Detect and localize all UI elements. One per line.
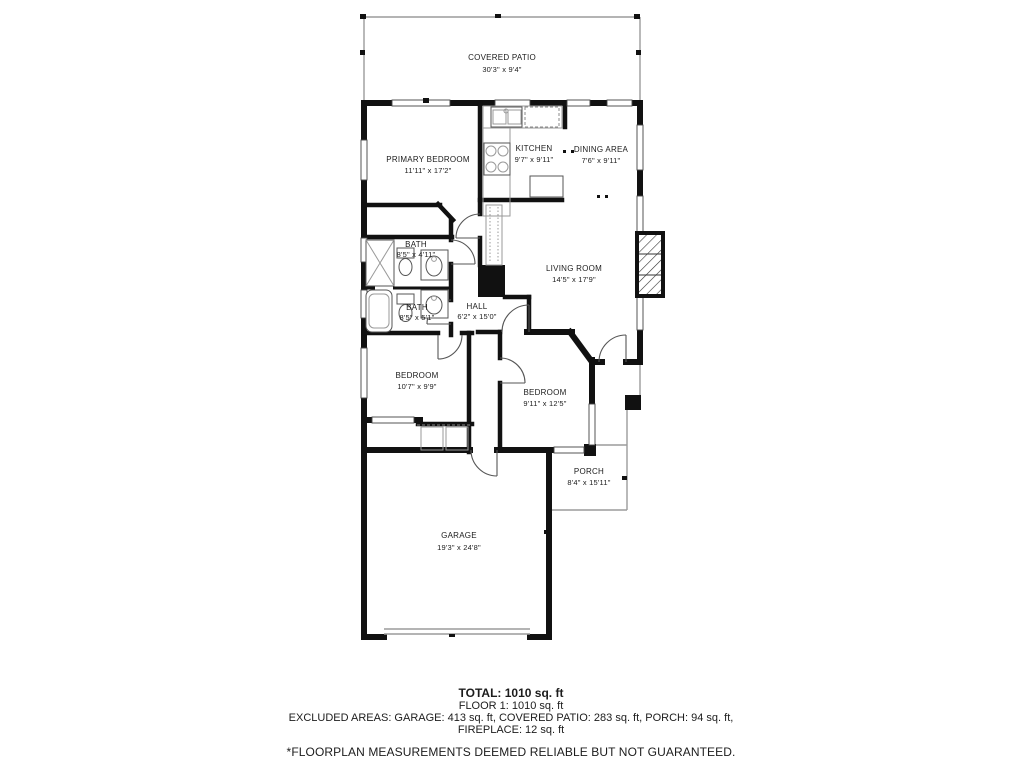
fireplace [637,233,663,296]
washer [421,427,443,450]
bedroom-left-door [438,335,462,359]
room-dims-bedroom-right: 9'11" x 12'5" [523,399,566,408]
summary-disclaimer: *FLOORPLAN MEASUREMENTS DEEMED RELIABLE … [287,745,736,759]
garage-door [384,629,530,634]
room-dims-bedroom-left: 10'7" x 9'9" [397,382,436,391]
room-label-bedroom-right: BEDROOM [523,388,566,397]
room-label-covered-patio: COVERED PATIO [468,53,536,62]
exterior-walls [364,103,640,637]
dishwasher [525,107,559,127]
entry-closet-pier [478,265,505,297]
summary-excluded-2: FIREPLACE: 12 sq. ft [458,724,564,736]
dimension-ticks [361,98,608,637]
doors [427,214,626,476]
room-label-kitchen: KITCHEN [516,144,553,153]
room-dims-bath-lower: 8'5" x 5'1" [400,313,435,322]
summary-text: TOTAL: 1010 sq. ft FLOOR 1: 1010 sq. ft … [287,686,736,759]
summary-excluded-1: EXCLUDED AREAS: GARAGE: 413 sq. ft, COVE… [289,712,734,724]
summary-floor1: FLOOR 1: 1010 sq. ft [459,700,564,712]
room-label-dining-area: DINING AREA [574,145,629,154]
shower [366,240,394,286]
room-dims-porch: 8'4" x 15'11" [567,478,610,487]
entry-closet-door [502,305,529,332]
floorplan-drawing: COVERED PATIO 30'3" x 9'4" PRIMARY BEDRO… [0,0,1023,767]
garage-entry-door [471,450,497,476]
room-label-living-room: LIVING ROOM [546,264,602,273]
room-dims-primary-bedroom: 11'11" x 17'2" [405,166,452,175]
room-dims-dining-area: 7'6" x 9'11" [582,156,621,165]
bath-upper-door [451,240,475,264]
kitchen-fixtures [483,106,563,265]
room-label-bath-upper: BATH [405,240,427,249]
room-label-garage: GARAGE [441,531,477,540]
room-dims-kitchen: 9'7" x 9'11" [515,155,554,164]
refrigerator [530,176,563,197]
room-label-bedroom-left: BEDROOM [395,371,438,380]
room-label-primary-bedroom: PRIMARY BEDROOM [386,155,470,164]
kitchen-sink [491,107,522,127]
room-dims-hall: 6'2" x 15'0" [457,312,496,321]
bathtub [366,290,392,332]
room-dims-garage: 19'3" x 24'8" [437,543,481,552]
room-label-hall: HALL [466,302,487,311]
dryer [446,427,468,450]
primary-bedroom-door [456,214,480,238]
floorplan-page: COVERED PATIO 30'3" x 9'4" PRIMARY BEDRO… [0,0,1023,767]
hall-half-wall [486,205,502,265]
front-door [599,335,626,362]
bedroom-right-door [500,358,525,383]
room-label-porch: PORCH [574,467,604,476]
stove [484,143,510,175]
room-dims-covered-patio: 30'3" x 9'4" [482,65,521,74]
room-label-bath-lower: BATH [406,303,428,312]
room-dims-living-room: 14'5" x 17'9" [552,275,596,284]
room-dims-bath-upper: 8'5" x 4'11" [397,250,436,259]
laundry-appliances [417,425,470,450]
summary-total: TOTAL: 1010 sq. ft [459,686,564,700]
